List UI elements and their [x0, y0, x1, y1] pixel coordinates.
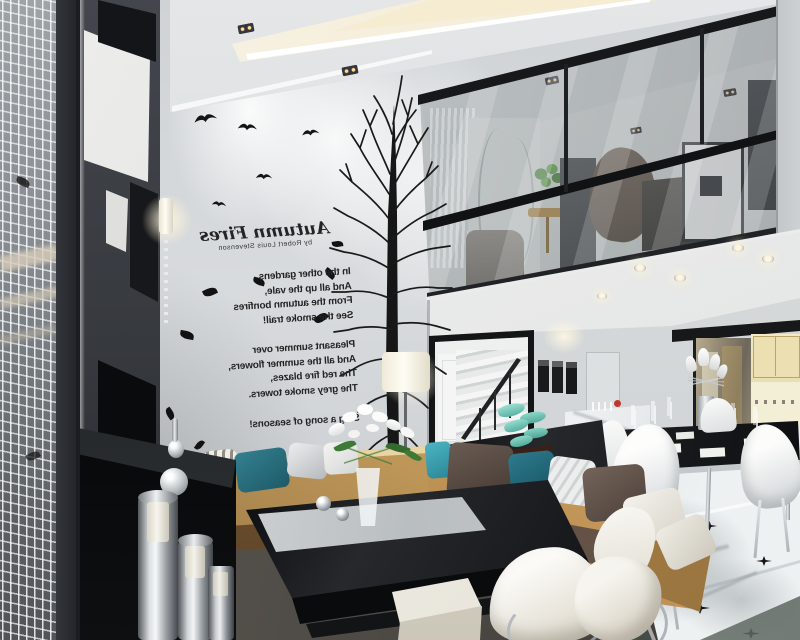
- wall-art-frame: [552, 361, 563, 393]
- wine-glass: [670, 402, 672, 419]
- bar-rose: [614, 400, 621, 407]
- stair-baluster: [494, 390, 496, 430]
- silver-decanter-stopper: [172, 418, 178, 442]
- bar-glassware: [592, 402, 612, 411]
- recessed-spot-glow: [536, 318, 592, 364]
- soffit-downlight: [634, 264, 646, 272]
- floor-lamp-shade: [382, 352, 430, 392]
- sconce-crystal-beads: [164, 240, 168, 328]
- teal-pillow: [233, 447, 290, 494]
- calla-flower: [698, 348, 710, 366]
- white-candle: [185, 546, 205, 578]
- bird-decal: [256, 171, 274, 181]
- wine-glass: [634, 410, 636, 428]
- silver-decanter-neck: [168, 440, 184, 458]
- kitchen-utensil-rail: [755, 400, 797, 404]
- wall-art-frame: [566, 362, 577, 394]
- wall-art-frame: [538, 360, 549, 392]
- white-candle: [213, 572, 228, 596]
- bird-decal: [302, 127, 321, 138]
- wall-sconce: [159, 198, 173, 234]
- soffit-downlight: [762, 255, 774, 263]
- silver-sphere: [336, 508, 349, 521]
- bird-decal: [238, 121, 259, 133]
- poem-stanza: In the other gardens And all up the vale…: [183, 265, 354, 333]
- stair-baluster: [479, 408, 481, 442]
- mesh-frame-edge: [76, 0, 80, 640]
- silver-sphere: [316, 496, 331, 511]
- mesh-frame-bar: [56, 0, 76, 640]
- wall-poem-decal: Autumn Fires by Robert Louis Stevenson I…: [180, 217, 360, 436]
- living-room-photo: Autumn Fires by Robert Louis Stevenson I…: [0, 0, 800, 640]
- white-candle: [147, 502, 169, 542]
- soffit-downlight: [732, 244, 744, 252]
- poem-stanza: Pleasant summer over And all the summer …: [187, 338, 358, 406]
- soffit-downlight: [597, 293, 607, 300]
- napkin-setting: [700, 447, 725, 457]
- wine-glass: [654, 406, 656, 424]
- soffit-downlight: [674, 274, 686, 282]
- glass-post: [700, 28, 704, 144]
- napkin-setting: [676, 432, 694, 440]
- mesh-screen: [0, 0, 80, 640]
- glass-post: [564, 64, 568, 192]
- kitchen-cabinet-divider: [775, 336, 776, 376]
- kitchen-upper-cabinets: [753, 336, 800, 378]
